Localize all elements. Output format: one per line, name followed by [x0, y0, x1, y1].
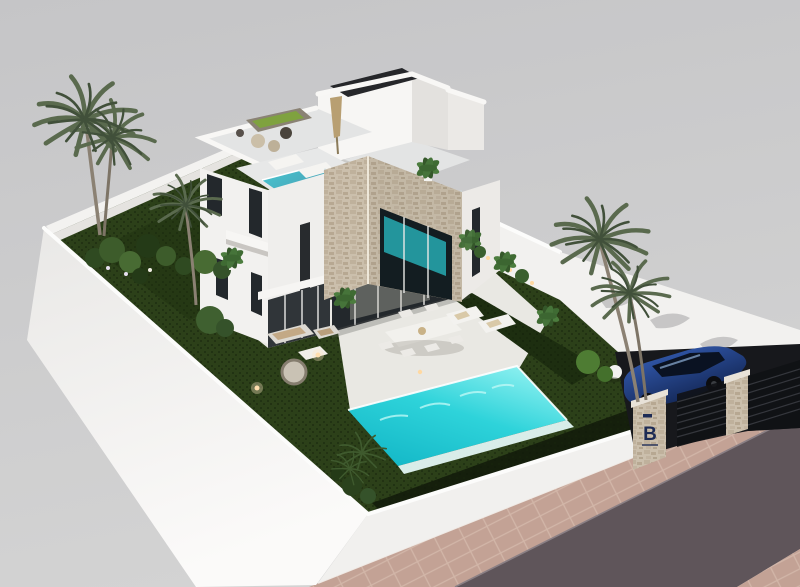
planter-light-4	[530, 281, 534, 285]
brand-monogram: B	[643, 424, 657, 445]
spotlight-halo-2	[251, 382, 263, 394]
garden-spotlight-3	[418, 370, 422, 374]
rooftop-coffee-table	[280, 127, 292, 139]
planter-light-2	[486, 256, 490, 260]
brand-logo-subline	[642, 444, 658, 446]
window-upper-2	[249, 188, 262, 238]
rooftop-pouf-2	[268, 140, 280, 152]
rooftop-pouf-1	[251, 134, 265, 148]
wicker-chair	[282, 360, 306, 384]
spotlight-halo-1	[312, 349, 324, 361]
stone-face-left	[324, 156, 368, 300]
architectural-render: B	[0, 0, 800, 587]
rooftop-side-table	[236, 129, 244, 137]
render-canvas: B	[0, 0, 800, 587]
table-centerpiece	[418, 327, 426, 335]
brand-logo-flag	[643, 414, 652, 418]
